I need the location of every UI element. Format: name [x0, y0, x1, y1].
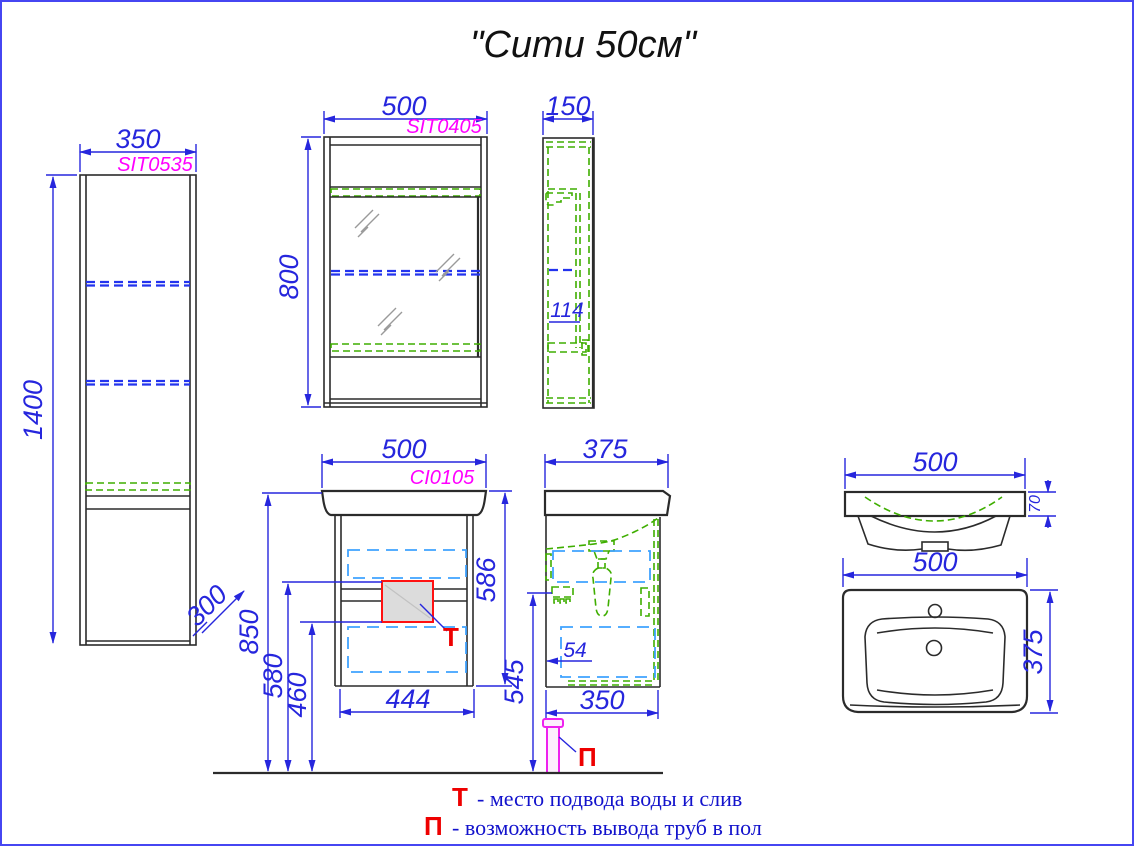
sink-bowl-arc: [871, 516, 996, 532]
vanity-sink-profile: [322, 491, 486, 515]
sink-rim: [845, 492, 1025, 516]
floor-pipe-cap: [543, 719, 563, 727]
side-rail-green: [641, 588, 649, 616]
hatch-group-2: [436, 254, 460, 281]
legend-supply-symbol: Т: [452, 782, 468, 812]
page-border: [1, 1, 1133, 845]
drawing-title: "Сити 50см": [470, 24, 698, 66]
side-drawer-hidden-1: [553, 551, 650, 582]
sink-basin-bottom-arc: [877, 690, 993, 695]
drain-outlet-clamp: [552, 587, 573, 597]
sink-front-width-label: 500: [912, 447, 957, 477]
siphon-bottle: [593, 568, 612, 616]
vanity-width-label: 500: [381, 434, 426, 464]
tall-cabinet-depth-label: 300: [180, 579, 233, 632]
side-back-rail-green: [546, 554, 551, 580]
mirror-glass-hatch: [355, 210, 460, 335]
tall-cabinet-height-label: 1400: [18, 380, 48, 440]
technical-drawing: "Сити 50см" 350 SIT0535 1400 300: [0, 0, 1134, 846]
faucet-hole: [929, 605, 942, 618]
mirror-front-shelf-green-2: [331, 344, 480, 351]
sink-left-wing: [858, 516, 922, 550]
drain-pipe-neck: [598, 559, 605, 568]
sink-top-depth-label: 375: [1018, 628, 1048, 674]
tall-cabinet-view: 350 SIT0535 1400 300: [18, 124, 244, 645]
hatch-group-1: [355, 210, 379, 237]
floor-marker-p: П: [578, 742, 597, 772]
sink-top-view: 500 375: [843, 547, 1058, 713]
vanity-inner-width-label: 444: [385, 684, 430, 714]
sink-rim-height-label: 70: [1027, 495, 1044, 513]
supply-marker-t: Т: [443, 622, 459, 652]
legend: Т - место подвода воды и слив П - возмож…: [424, 782, 762, 841]
vanity-supply-low-label: 460: [282, 672, 312, 717]
pipe-leader-line: [559, 737, 576, 752]
mirror-front-height-label: 800: [274, 254, 304, 299]
mirror-cabinet-side-view: 150 114: [543, 91, 594, 408]
mirror-front-code-label: SIT0405: [406, 116, 482, 138]
mirror-side-hinge-detail: [546, 193, 572, 205]
vanity-front-view: Т 500 CI0105 586 850 580 460 444: [234, 434, 512, 771]
vanity-side-sink-profile: [545, 491, 670, 515]
sink-top-width-label: 500: [912, 547, 957, 577]
legend-floor-symbol: П: [424, 811, 443, 841]
vanity-code-label: CI0105: [410, 467, 475, 489]
vanity-drawer-hidden-1: [348, 550, 466, 578]
back-gap-label: 54: [563, 639, 586, 662]
vanity-depth-label: 375: [582, 434, 628, 464]
tall-cabinet-body: [80, 175, 196, 645]
tall-cabinet-shelf-green: [86, 483, 190, 490]
drawing-page: "Сити 50см" 350 SIT0535 1400 300: [0, 0, 1134, 846]
sink-front-view: 500 70: [845, 447, 1056, 551]
clamp-bolts: [554, 599, 570, 603]
mirror-side-depth-label: 114: [550, 299, 583, 322]
sink-bowl-hidden-arc: [865, 497, 1002, 521]
mirror-front-shelf-green-1: [331, 189, 480, 196]
vanity-height-label: 586: [471, 556, 501, 602]
sink-basin-top-arc: [877, 628, 993, 633]
sink-right-wing: [948, 516, 1010, 550]
drain-height-label: 545: [499, 658, 529, 704]
mirror-cabinet-front-view: 500 SIT0405 800: [274, 91, 487, 407]
tall-cabinet-width-label: 350: [115, 124, 160, 154]
drain-funnel: [594, 551, 609, 559]
sink-underside-hidden: [546, 518, 658, 549]
tall-cabinet-code-label: SIT0535: [117, 154, 193, 176]
floor-pipe-body: [547, 727, 559, 773]
hatch-group-3: [378, 308, 402, 335]
legend-floor-text: - возможность вывода труб в пол: [452, 815, 762, 840]
mirror-side-body: [543, 138, 594, 408]
legend-supply-text: - место подвода воды и слив: [477, 786, 742, 811]
vanity-total-height-label: 850: [234, 609, 264, 654]
vanity-side-view: 375 545 54 350 П: [499, 434, 670, 773]
drain-hole: [927, 641, 942, 656]
body-depth-label: 350: [579, 685, 624, 715]
mirror-side-width-label: 150: [545, 91, 590, 121]
